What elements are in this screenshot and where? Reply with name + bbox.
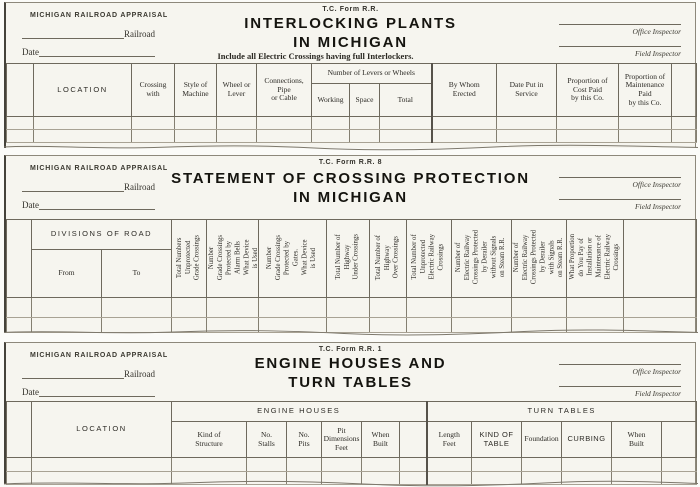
wheel-or-lever-column-header: Wheel or Lever [217,64,257,117]
office-inspector-line [559,23,681,25]
blank-engine-column-header [400,422,427,458]
no-pits-column-header: No. Pits [287,422,322,458]
field-inspector-field: Field Inspector [559,45,681,58]
turn-tables-group-header: TURN TABLES [427,402,697,422]
location-column-header: LOCATION [34,64,132,117]
field-inspector-field: Field Inspector [559,198,681,211]
field-inspector-label: Field Inspector [559,389,681,398]
empty-cell [217,117,257,130]
empty-cell [497,130,557,143]
crossing-with-column-header: Crossing with [132,64,175,117]
office-inspector-label: Office Inspector [559,27,681,36]
derailer-without-signals-column-header: Number of Electric Railway Crossings Pro… [452,220,512,298]
from-column-header: From [32,250,102,298]
empty-cell [432,130,497,143]
empty-cell [624,298,697,318]
empty-cell [322,458,362,472]
gates-crossings-column-header: Number Grade Crossings Protected by Gate… [259,220,327,298]
foundation-column-header: Foundation [522,422,562,458]
empty-cell [562,458,612,472]
empty-cell [7,458,32,472]
field-inspector-label: Field Inspector [559,49,681,58]
empty-cell [34,130,132,143]
empty-cell [102,298,172,318]
empty-cell [175,117,217,130]
divisions-of-road-group-header: DIVISIONS OF ROAD [32,220,172,250]
table-row [7,458,697,472]
empty-cell [34,117,132,130]
kind-of-table-column-header: KIND OF TABLE [472,422,522,458]
empty-cell [380,130,432,143]
crossing-protection-table: DIVISIONS OF ROAD Total Numbers Unprotec… [6,219,697,333]
empty-cell [259,298,327,318]
blank-end-column-header [624,220,697,298]
unprotected-electric-railway-column-header: Total Number of Unprotected Electric Rai… [407,220,452,298]
empty-cell [172,298,207,318]
empty-cell [312,117,350,130]
empty-cell [257,117,312,130]
no-stalls-column-header: No. Stalls [247,422,287,458]
date-put-in-service-column-header: Date Put in Service [497,64,557,117]
empty-cell [312,130,350,143]
unprotected-grade-crossings-column-header: Total Numbers Unprotected Grade Crossing… [172,220,207,298]
empty-cell [432,117,497,130]
empty-cell [287,458,322,472]
empty-cell [172,458,247,472]
empty-cell [175,130,217,143]
interlocking-table: LOCATION Crossing with Style of Machine … [6,63,697,143]
empty-cell [619,130,672,143]
location-column-header: LOCATION [32,402,172,458]
empty-cell [557,130,619,143]
empty-cell [32,298,102,318]
empty-cell [7,130,34,143]
field-inspector-label: Field Inspector [559,202,681,211]
curbing-column-header: CURBING [562,422,612,458]
empty-cell [427,458,472,472]
row-index-column-header [7,220,32,298]
empty-cell [612,458,662,472]
office-inspector-line [559,363,681,365]
empty-cell [380,117,432,130]
office-inspector-label: Office Inspector [559,367,681,376]
empty-cell [672,117,697,130]
length-feet-column-header: Length Feet [427,422,472,458]
form-number: T.C. Form R.R. 1 [6,346,695,353]
empty-cell [217,130,257,143]
empty-cell [370,298,407,318]
empty-cell [132,130,175,143]
highway-under-crossings-column-header: Total Number of Highway Under Crossings [327,220,370,298]
torn-paper-edge [4,143,698,151]
empty-cell [132,117,175,130]
empty-cell [207,298,259,318]
empty-cell [7,117,34,130]
row-index-column-header [7,402,32,458]
kind-of-structure-column-header: Kind of Structure [172,422,247,458]
empty-cell [400,458,427,472]
table-row [7,117,697,130]
table-row [7,130,697,143]
empty-cell [32,458,172,472]
empty-cell [362,458,400,472]
table-row [7,298,697,318]
highway-over-crossings-column-header: Total Number of Highway Over Crossings [370,220,407,298]
empty-cell [567,298,624,318]
proportion-maintenance-column-header: Proportion of Maintenance Paid by this C… [619,64,672,117]
connections-column-header: Connections, Pipe or Cable [257,64,312,117]
empty-cell [452,298,512,318]
proportion-cost-column-header: Proportion of Cost Paid by this Co. [557,64,619,117]
office-inspector-field: Office Inspector [559,176,681,189]
blank-end-column-header [662,422,697,458]
form-crossing-protection: MICHIGAN RAILROAD APPRAISAL Railroad Dat… [4,155,696,333]
pit-dimensions-column-header: Pit Dimensions Feet [322,422,362,458]
torn-paper-edge [4,328,698,336]
working-column-header: Working [312,84,350,117]
empty-cell [350,117,380,130]
field-inspector-line [559,198,681,200]
row-index-column-header [7,64,34,117]
engine-houses-turn-tables-table: LOCATION ENGINE HOUSES TURN TABLES Kind … [6,401,697,485]
empty-cell [7,298,32,318]
empty-cell [350,130,380,143]
empty-cell [407,298,452,318]
form-number: T.C. Form R.R. 8 [6,159,695,166]
to-column-header: To [102,250,172,298]
office-inspector-line [559,176,681,178]
field-inspector-line [559,385,681,387]
style-of-machine-column-header: Style of Machine [175,64,217,117]
proportion-installation-column-header: What Proportion do You Pay of Installati… [567,220,624,298]
form-interlocking-plants: MICHIGAN RAILROAD APPRAISAL Railroad Dat… [4,2,696,148]
empty-cell [257,130,312,143]
derailer-with-signals-column-header: Number of Electric Railway Crossings Pro… [512,220,567,298]
total-column-header: Total [380,84,432,117]
form-number: T.C. Form R.R. [6,6,695,13]
empty-cell [619,117,672,130]
torn-paper-edge [4,479,698,487]
empty-cell [522,458,562,472]
engine-houses-group-header: ENGINE HOUSES [172,402,427,422]
office-inspector-field: Office Inspector [559,363,681,376]
field-inspector-field: Field Inspector [559,385,681,398]
when-built-engine-column-header: When Built [362,422,400,458]
empty-cell [672,130,697,143]
levers-group-header: Number of Levers or Wheels [312,64,432,84]
by-whom-erected-column-header: By Whom Erected [432,64,497,117]
empty-cell [512,298,567,318]
form-engine-houses-turn-tables: MICHIGAN RAILROAD APPRAISAL Railroad Dat… [4,342,696,484]
blank-end-column-header [672,64,697,117]
office-inspector-label: Office Inspector [559,180,681,189]
office-inspector-field: Office Inspector [559,23,681,36]
when-built-turn-column-header: When Built [612,422,662,458]
empty-cell [662,458,697,472]
empty-cell [327,298,370,318]
empty-cell [472,458,522,472]
alarm-bells-crossings-column-header: Number Grade Crossings Protected by Alar… [207,220,259,298]
empty-cell [247,458,287,472]
empty-cell [557,117,619,130]
empty-cell [497,117,557,130]
space-column-header: Space [350,84,380,117]
field-inspector-line [559,45,681,47]
